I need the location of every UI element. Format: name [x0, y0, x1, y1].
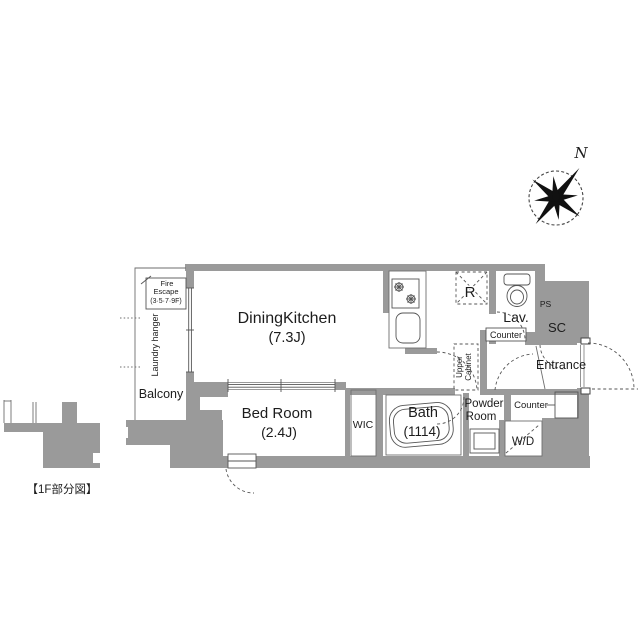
room-label-refrigerator: R	[465, 284, 476, 301]
room-label-bath: Bath	[408, 405, 438, 421]
counter-lavatory-label: Counter	[490, 330, 522, 340]
counter-entrance-label: Counter	[514, 400, 548, 411]
room-label-washer-dryer: W/D	[512, 436, 534, 448]
room-label-pipe-space: PS	[540, 299, 552, 309]
sink-icon	[396, 313, 420, 343]
wall-kitchen-stub	[383, 264, 389, 313]
compass-rose-icon: N	[512, 144, 603, 242]
first-floor-partial-shape	[4, 400, 100, 468]
room-label-bed-room: Bed Room	[242, 405, 313, 422]
floor-plan-page: N DiningKitchen (7.3J) Bed Room (2.4J) W…	[0, 0, 640, 640]
north-label: N	[573, 144, 588, 162]
room-label-powder-line1: Powder	[465, 398, 504, 410]
wall-dk-bottom-stub	[405, 348, 437, 354]
room-label-powder-line2: Room	[466, 411, 497, 423]
wall-wic-bath-top	[345, 388, 455, 395]
floor-caption: 【1F部分図】	[27, 482, 98, 496]
door-swing-arc-bedroom	[226, 469, 254, 493]
room-label-entrance: Entrance	[536, 358, 586, 372]
upper-cabinet-label-line1: Upper	[455, 356, 464, 378]
wall-powder-wd	[499, 420, 505, 457]
window-bedroom-partition	[228, 383, 335, 389]
room-label-wic: WIC	[353, 419, 374, 431]
wall-wic-bath	[376, 388, 383, 456]
room-size-dining-kitchen: (7.3J)	[268, 330, 305, 346]
room-size-bath: (1114)	[403, 424, 440, 439]
floor-plan-canvas: N DiningKitchen (7.3J) Bed Room (2.4J) W…	[0, 0, 640, 640]
room-size-bed-room: (2.4J)	[261, 424, 297, 440]
laundry-hanger-label: Laundry hanger	[150, 313, 160, 376]
door-swing-arc-entrance	[588, 343, 634, 389]
counter-entrance-box	[555, 392, 578, 418]
wall-counter-left	[504, 392, 511, 421]
upper-cabinet-label-line2: Cabinet	[464, 352, 473, 380]
stove-burner-icon	[394, 282, 416, 304]
door-pivot-bottom	[581, 388, 590, 394]
door-swing-arc-hall-right	[495, 354, 533, 390]
room-label-dining-kitchen: DiningKitchen	[238, 310, 337, 327]
toilet-icon	[504, 274, 530, 307]
wall-lav-left	[489, 264, 496, 314]
notch-bottom-left	[118, 427, 128, 438]
room-label-lavatory: Lav.	[503, 309, 528, 325]
kitchen-counter	[389, 271, 426, 348]
wall-bed-wic	[345, 388, 350, 456]
first-floor-shape-lines	[4, 400, 36, 423]
first-floor-shape-body	[4, 402, 100, 468]
fire-escape-line3: (3·5·7·9F)	[150, 298, 182, 305]
wall-lav-bottom-right	[525, 332, 537, 345]
wall-bedroom-step	[186, 382, 228, 420]
room-label-shoe-closet: SC	[548, 320, 566, 335]
stove-icon	[392, 279, 419, 308]
wall-wd-right-block	[542, 418, 577, 458]
room-label-balcony: Balcony	[139, 387, 184, 401]
powder-sink-basin	[474, 433, 495, 449]
fire-escape-line2: Escape	[153, 287, 178, 296]
